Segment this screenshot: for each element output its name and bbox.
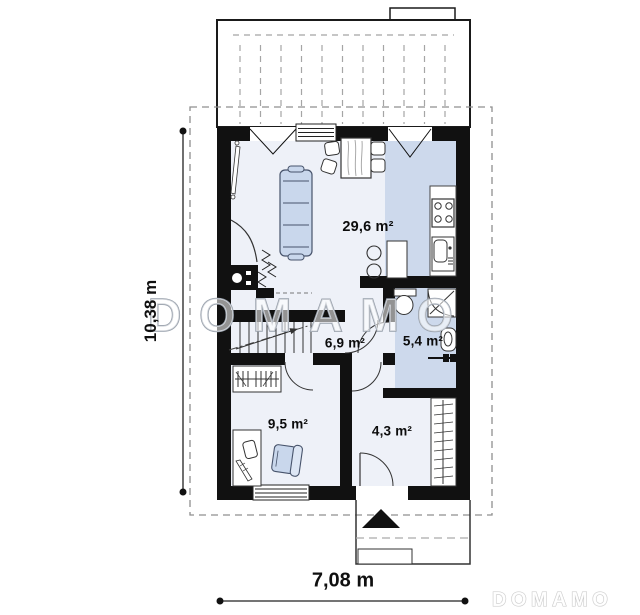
floor-plan-drawing: DOMAMO DOMAMO [0, 0, 640, 615]
wardrobe-room [233, 366, 281, 392]
floor-plan-canvas: DOMAMO DOMAMO 29,6 m² 6,9 m² 5,4 m² 9,5 … [0, 0, 640, 615]
armchair [271, 442, 303, 477]
porch-step [358, 549, 412, 564]
window-top [296, 124, 336, 141]
window-bottom [253, 485, 309, 500]
room-area-label-living: 29,6 m² [342, 219, 393, 235]
stove [432, 199, 454, 227]
entrance-arrow [362, 509, 400, 528]
dimension-label-height: 10,38 m [141, 280, 161, 342]
porch [356, 500, 470, 564]
room-area-label-bathroom: 5,4 m² [403, 334, 443, 349]
kitchen-sink [432, 237, 454, 271]
dining-table [341, 138, 371, 178]
room-area-label-hallway: 6,9 m² [325, 336, 365, 351]
kitchen-island [387, 241, 407, 278]
watermark-corner: DOMAMO [492, 589, 612, 611]
sofa [280, 166, 312, 260]
desk [233, 430, 261, 486]
room-area-label-entrance-hall: 4,3 m² [372, 424, 412, 439]
dimension-line-horizontal [217, 598, 469, 605]
dimension-label-width: 7,08 m [312, 570, 374, 593]
room-area-label-room: 9,5 m² [268, 417, 308, 432]
wardrobe-entrance [431, 398, 456, 486]
terrace [217, 20, 470, 127]
